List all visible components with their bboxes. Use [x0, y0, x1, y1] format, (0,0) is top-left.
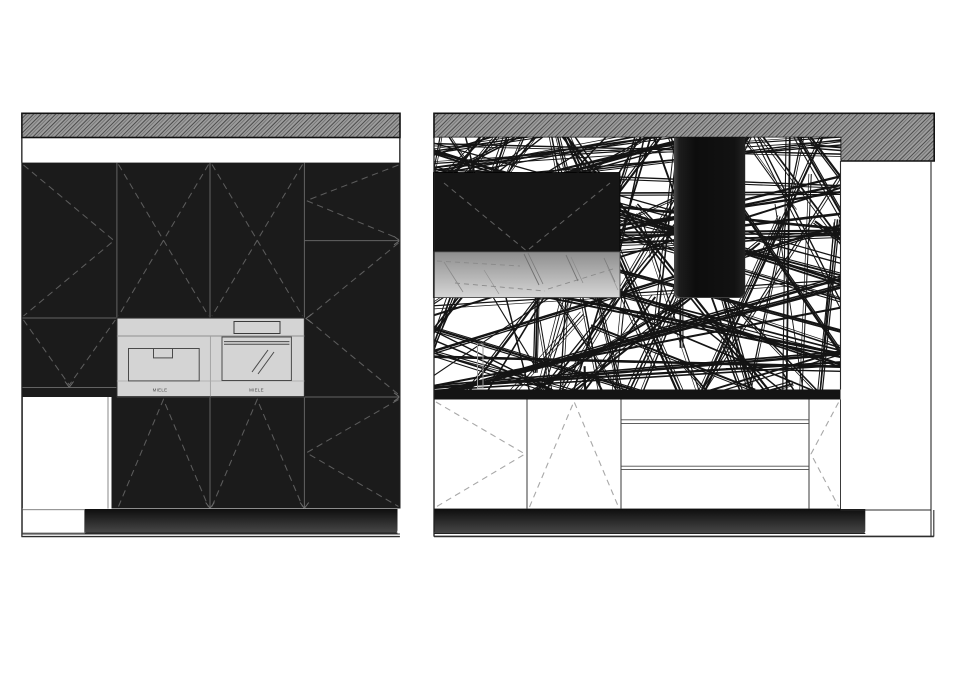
svg-text:MIELE: MIELE — [153, 388, 168, 393]
svg-text:MIELE: MIELE — [249, 388, 264, 393]
